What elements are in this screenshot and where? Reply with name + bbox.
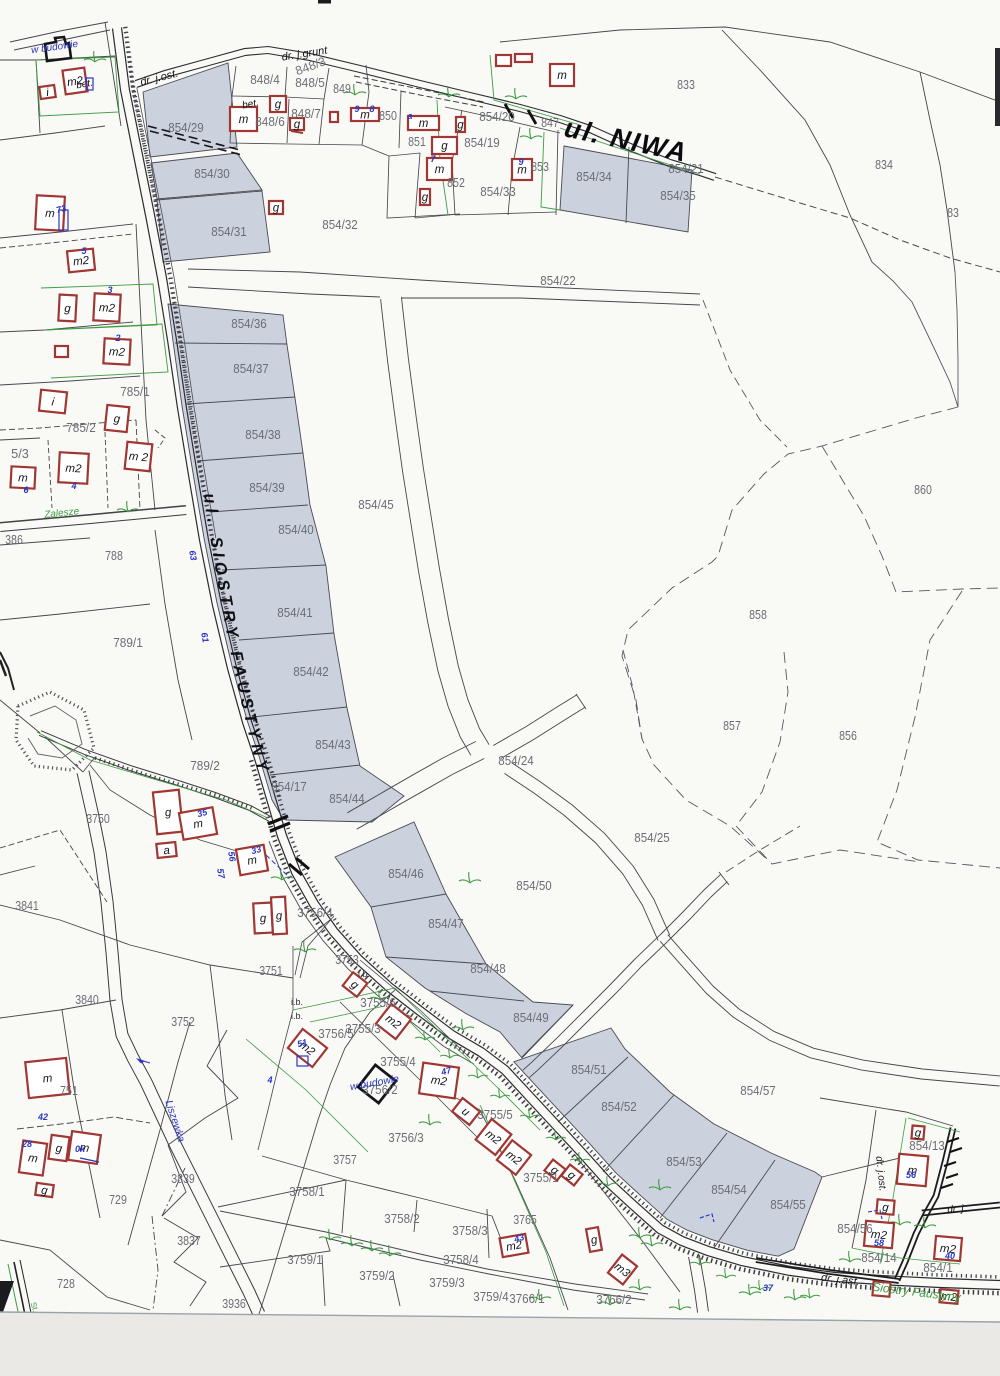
- svg-text:3841: 3841: [15, 899, 39, 913]
- svg-text:3750: 3750: [86, 812, 110, 826]
- svg-text:850: 850: [379, 109, 397, 123]
- svg-text:3839: 3839: [171, 1172, 195, 1186]
- svg-text:m: m: [42, 1072, 53, 1085]
- svg-text:3756/4: 3756/4: [297, 906, 332, 920]
- svg-text:a: a: [163, 845, 171, 858]
- svg-text:854/41: 854/41: [277, 606, 312, 620]
- svg-text:g: g: [260, 913, 268, 925]
- svg-text:g: g: [273, 203, 280, 215]
- svg-text:m2: m2: [73, 255, 91, 269]
- svg-text:56: 56: [906, 1170, 917, 1180]
- svg-text:854/40: 854/40: [278, 523, 313, 537]
- svg-text:37: 37: [763, 1283, 774, 1293]
- svg-text:834: 834: [875, 158, 893, 172]
- svg-text:854/22: 854/22: [540, 274, 575, 288]
- svg-text:854/29: 854/29: [168, 121, 203, 135]
- svg-text:3759/1: 3759/1: [287, 1253, 322, 1267]
- svg-text:g: g: [276, 910, 284, 922]
- svg-text:9: 9: [518, 157, 523, 167]
- svg-text:854/48: 854/48: [470, 962, 505, 976]
- svg-text:854/30: 854/30: [194, 167, 229, 181]
- svg-text:854/39: 854/39: [249, 481, 284, 495]
- svg-text:785/2: 785/2: [66, 421, 96, 435]
- svg-text:3759/2: 3759/2: [359, 1269, 394, 1283]
- svg-text:a: a: [407, 111, 412, 121]
- svg-text:857: 857: [723, 719, 741, 733]
- svg-text:63: 63: [187, 550, 199, 562]
- svg-text:m: m: [435, 164, 445, 176]
- svg-text:5/3: 5/3: [11, 447, 29, 461]
- svg-text:58: 58: [874, 1238, 884, 1248]
- svg-text:854/50: 854/50: [516, 879, 551, 893]
- svg-text:854/47: 854/47: [428, 917, 463, 931]
- svg-text:854/24: 854/24: [498, 754, 533, 768]
- svg-text:3936: 3936: [222, 1297, 246, 1311]
- svg-text:3755/5: 3755/5: [477, 1108, 512, 1122]
- svg-text:m 2: m 2: [128, 451, 149, 465]
- svg-text:785/1: 785/1: [120, 385, 150, 399]
- svg-text:854/43: 854/43: [315, 738, 350, 752]
- svg-text:3765: 3765: [513, 1213, 537, 1227]
- svg-text:m2: m2: [99, 302, 116, 315]
- svg-text:854/19: 854/19: [464, 136, 499, 150]
- svg-text:61: 61: [199, 632, 211, 644]
- svg-text:854/38: 854/38: [245, 428, 280, 442]
- svg-text:854/55: 854/55: [770, 1198, 805, 1212]
- svg-text:848/6: 848/6: [255, 115, 285, 129]
- svg-text:3755/4: 3755/4: [380, 1055, 415, 1069]
- svg-text:789/1: 789/1: [113, 636, 143, 650]
- svg-text:m: m: [419, 118, 429, 130]
- svg-text:3766/2: 3766/2: [596, 1293, 631, 1307]
- svg-text:854/33: 854/33: [480, 185, 515, 199]
- svg-text:854/46: 854/46: [388, 867, 423, 881]
- svg-text:833: 833: [677, 78, 695, 92]
- svg-text:854/25: 854/25: [634, 831, 669, 845]
- svg-text:854/52: 854/52: [601, 1100, 636, 1114]
- svg-text:3756/3: 3756/3: [388, 1131, 423, 1145]
- svg-text:851: 851: [408, 135, 426, 149]
- svg-text:g: g: [275, 99, 282, 111]
- svg-text:28: 28: [21, 1139, 32, 1149]
- svg-text:g: g: [422, 192, 429, 204]
- svg-text:3: 3: [107, 285, 112, 295]
- svg-text:g: g: [457, 120, 464, 132]
- svg-text:788: 788: [105, 549, 123, 563]
- svg-text:854/13: 854/13: [909, 1139, 944, 1153]
- svg-text:854/45: 854/45: [358, 498, 393, 512]
- svg-text:m2: m2: [430, 1074, 448, 1088]
- svg-text:3758/2: 3758/2: [384, 1212, 419, 1226]
- svg-text:858: 858: [749, 608, 767, 622]
- svg-text:3756/5: 3756/5: [318, 1027, 353, 1041]
- svg-text:854/35: 854/35: [660, 189, 695, 203]
- svg-text:3758/4: 3758/4: [443, 1253, 478, 1267]
- svg-text:854/44: 854/44: [329, 792, 364, 806]
- svg-text:854/37: 854/37: [233, 362, 268, 376]
- svg-text:i.b.: i.b.: [291, 1011, 303, 1021]
- svg-text:3753: 3753: [335, 953, 359, 967]
- svg-text:dr. j.: dr. j.: [947, 1203, 967, 1215]
- svg-text:854/42: 854/42: [293, 665, 328, 679]
- svg-text:856: 856: [839, 729, 857, 743]
- svg-text:854/57: 854/57: [740, 1084, 775, 1098]
- svg-text:854/17: 854/17: [271, 780, 306, 794]
- svg-text:m: m: [239, 114, 249, 126]
- svg-text:789/2: 789/2: [190, 759, 220, 773]
- svg-text:848/4: 848/4: [250, 73, 280, 87]
- svg-text:4: 4: [70, 481, 76, 491]
- svg-text:3755/1: 3755/1: [523, 1171, 558, 1185]
- svg-text:854/34: 854/34: [576, 170, 611, 184]
- svg-text:4: 4: [266, 1075, 272, 1085]
- svg-text:3840: 3840: [75, 993, 99, 1007]
- svg-text:751: 751: [60, 1084, 78, 1098]
- svg-text:3757: 3757: [333, 1153, 357, 1167]
- svg-text:854/36: 854/36: [231, 317, 266, 331]
- svg-text:854/56: 854/56: [837, 1222, 872, 1236]
- svg-text:854/53: 854/53: [666, 1155, 701, 1169]
- svg-text:3755/6: 3755/6: [360, 996, 395, 1010]
- svg-text:3751: 3751: [259, 964, 283, 978]
- svg-text:m: m: [45, 208, 56, 221]
- svg-text:847: 847: [541, 116, 559, 130]
- svg-text:848/5: 848/5: [295, 76, 325, 90]
- svg-text:g: g: [441, 141, 448, 153]
- svg-text:854/20: 854/20: [479, 110, 514, 124]
- svg-text:m: m: [557, 70, 567, 82]
- svg-text:3758/3: 3758/3: [452, 1224, 487, 1238]
- svg-text:853: 853: [531, 160, 549, 174]
- svg-text:3766/1: 3766/1: [509, 1292, 544, 1306]
- svg-text:9: 9: [354, 104, 359, 114]
- svg-text:42: 42: [37, 1112, 48, 1122]
- svg-text:g: g: [64, 303, 72, 315]
- svg-text:854/49: 854/49: [513, 1011, 548, 1025]
- svg-text:386: 386: [5, 533, 23, 547]
- svg-text:848/7: 848/7: [291, 107, 321, 121]
- svg-text:860: 860: [914, 483, 932, 497]
- svg-text:3759/3: 3759/3: [429, 1276, 464, 1290]
- svg-text:729: 729: [109, 1193, 127, 1207]
- svg-text:m2: m2: [65, 463, 82, 476]
- svg-text:m2: m2: [109, 346, 126, 359]
- svg-text:3837: 3837: [177, 1234, 201, 1248]
- svg-text:3758/1: 3758/1: [289, 1185, 324, 1199]
- svg-text:40: 40: [944, 1251, 955, 1261]
- svg-text:2: 2: [114, 333, 120, 343]
- svg-text:83: 83: [947, 206, 959, 220]
- svg-text:0k: 0k: [75, 1144, 86, 1154]
- svg-text:854/51: 854/51: [571, 1063, 606, 1077]
- svg-text:852: 852: [447, 176, 465, 190]
- svg-text:i.b.: i.b.: [358, 969, 370, 979]
- svg-text:3759/4: 3759/4: [473, 1290, 508, 1304]
- svg-text:854/32: 854/32: [322, 218, 357, 232]
- svg-text:m: m: [18, 472, 29, 485]
- svg-text:3752: 3752: [171, 1015, 195, 1029]
- svg-text:728: 728: [57, 1277, 75, 1291]
- svg-text:854/54: 854/54: [711, 1183, 746, 1197]
- svg-text:849: 849: [333, 82, 351, 96]
- svg-text:8: 8: [369, 104, 374, 114]
- svg-text:854/1: 854/1: [923, 1261, 953, 1275]
- svg-text:i.b.: i.b.: [291, 997, 303, 1007]
- svg-text:854/14: 854/14: [861, 1251, 896, 1265]
- svg-text:854/31: 854/31: [211, 225, 246, 239]
